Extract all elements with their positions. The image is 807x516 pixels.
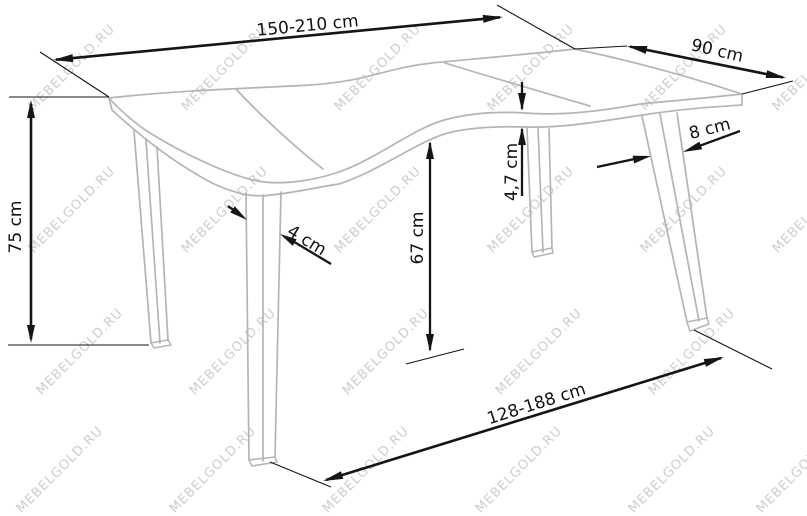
dim-label-top-depth: 90 cm	[689, 35, 745, 66]
tabletop-corner-edges	[109, 94, 742, 110]
tabletop-seam-left	[236, 89, 323, 169]
dimension-base-span: 128-188 cm	[270, 330, 772, 487]
dim-label-leg-front-width: 4 cm	[283, 221, 329, 260]
table-leg-front-left	[246, 192, 281, 466]
dim-label-height: 75 cm	[6, 201, 26, 254]
dimension-top-length: 150-210 cm	[40, 5, 575, 97]
dimension-top-depth: 90 cm	[575, 35, 793, 94]
dimension-height: 75 cm	[6, 97, 149, 345]
tabletop-outline	[109, 49, 742, 183]
diagram-canvas: MEBELGOLD.RU MEBELGOLD.RU MEBELGOLD.RU M…	[0, 0, 807, 492]
dim-label-clearance: 67 cm	[408, 212, 428, 265]
dimension-clearance: 67 cm	[406, 141, 464, 364]
table-dimension-diagram: 150-210 cm 90 cm 75 cm 4,7 cm	[0, 0, 807, 492]
dim-label-top-thickness: 4,7 cm	[502, 143, 522, 201]
table-leg-back-left	[134, 131, 171, 348]
tabletop-bottom-edge	[112, 105, 742, 196]
tabletop-seam-right	[445, 63, 590, 106]
dimension-top-thickness: 4,7 cm	[502, 82, 526, 201]
dim-label-leg-side-width: 8 cm	[687, 114, 733, 144]
table-leg-back-right	[527, 128, 553, 257]
